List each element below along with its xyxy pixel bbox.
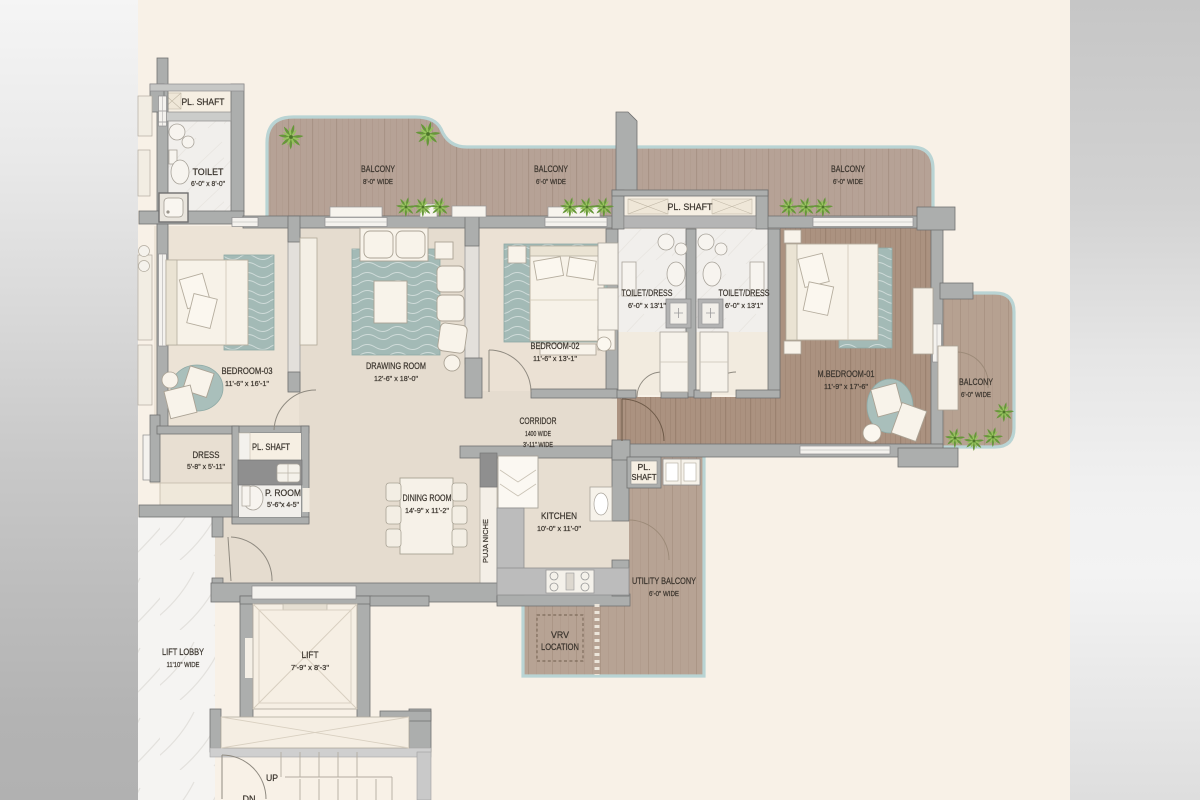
svg-text:P. ROOM: P. ROOM	[265, 488, 301, 498]
svg-text:BEDROOM-02: BEDROOM-02	[531, 341, 580, 352]
svg-text:6'-0" WIDE: 6'-0" WIDE	[833, 177, 863, 186]
svg-text:DRAWING ROOM: DRAWING ROOM	[366, 361, 426, 372]
svg-text:6'-0" x 8'-0": 6'-0" x 8'-0"	[191, 179, 225, 188]
svg-text:11'10" WIDE: 11'10" WIDE	[167, 660, 200, 669]
svg-text:M.BEDROOM-01: M.BEDROOM-01	[818, 369, 875, 380]
svg-text:11'-6" x 16'-1": 11'-6" x 16'-1"	[225, 379, 269, 388]
svg-text:CORRIDOR: CORRIDOR	[520, 416, 557, 427]
svg-text:7'-9" x 8'-3": 7'-9" x 8'-3"	[291, 663, 329, 672]
svg-text:PL.: PL.	[638, 463, 651, 472]
svg-text:6'-0" x 13'1": 6'-0" x 13'1"	[725, 301, 763, 310]
svg-text:KITCHEN: KITCHEN	[541, 511, 577, 522]
svg-text:11'-6" x 13'-1": 11'-6" x 13'-1"	[533, 354, 577, 363]
svg-text:6'-0" WIDE: 6'-0" WIDE	[536, 177, 566, 186]
svg-text:VRV: VRV	[551, 630, 569, 640]
svg-text:LOCATION: LOCATION	[541, 642, 579, 652]
svg-text:3'-11" WIDE: 3'-11" WIDE	[523, 440, 553, 449]
svg-text:5'-8" x 5'-11": 5'-8" x 5'-11"	[187, 462, 225, 471]
svg-text:SHAFT: SHAFT	[632, 473, 657, 482]
svg-text:11'-9" x 17'-6": 11'-9" x 17'-6"	[824, 382, 868, 391]
svg-text:6'-0" WIDE: 6'-0" WIDE	[961, 390, 991, 399]
svg-text:14'-9" x 11'-2": 14'-9" x 11'-2"	[405, 506, 449, 515]
svg-text:TOILET/DRESS: TOILET/DRESS	[622, 288, 673, 299]
svg-text:BALCONY: BALCONY	[534, 164, 568, 175]
svg-text:PUJA NICHE: PUJA NICHE	[481, 519, 490, 563]
svg-text:BALCONY: BALCONY	[959, 377, 993, 388]
svg-text:PL. SHAFT: PL. SHAFT	[668, 202, 713, 213]
svg-text:BALCONY: BALCONY	[831, 164, 865, 175]
svg-text:BEDROOM-03: BEDROOM-03	[222, 366, 273, 377]
svg-text:PL. SHAFT: PL. SHAFT	[182, 97, 225, 108]
svg-text:DINING ROOM: DINING ROOM	[403, 493, 452, 504]
svg-text:LIFT: LIFT	[302, 650, 319, 661]
svg-text:12'-6" x 18'-0": 12'-6" x 18'-0"	[374, 374, 418, 383]
svg-text:TOILET: TOILET	[193, 167, 224, 178]
svg-text:6'-0" x 13'1": 6'-0" x 13'1"	[628, 301, 666, 310]
svg-text:1400 WIDE: 1400 WIDE	[525, 429, 551, 438]
svg-text:TOILET/DRESS: TOILET/DRESS	[719, 288, 770, 299]
svg-text:8'-0" WIDE: 8'-0" WIDE	[363, 177, 393, 186]
svg-text:UP: UP	[266, 773, 278, 783]
svg-text:PL. SHAFT: PL. SHAFT	[252, 442, 291, 452]
svg-text:5'-6"x 4-5": 5'-6"x 4-5"	[267, 502, 300, 509]
svg-text:DRESS: DRESS	[193, 450, 220, 461]
svg-text:LIFT LOBBY: LIFT LOBBY	[162, 647, 205, 658]
svg-text:UTILITY BALCONY: UTILITY BALCONY	[632, 576, 696, 587]
svg-text:DN: DN	[243, 794, 256, 800]
svg-text:6'-0" WIDE: 6'-0" WIDE	[649, 589, 679, 598]
svg-text:10'-0" x 11'-0": 10'-0" x 11'-0"	[537, 524, 581, 533]
svg-text:BALCONY: BALCONY	[361, 164, 395, 175]
